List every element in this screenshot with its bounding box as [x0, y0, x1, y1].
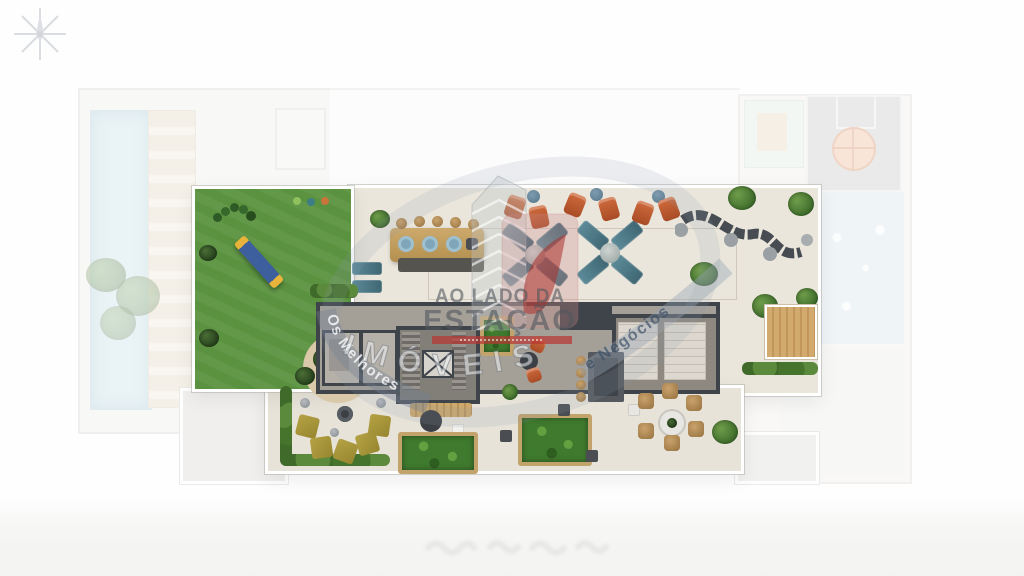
faint-caption-smudge	[420, 534, 630, 558]
watermark-tagline-line2: ESTAÇÃO	[420, 305, 580, 338]
watermark-red-band	[432, 336, 572, 344]
floorplan-canvas: Os Melhores e Negócios IMÓVEIS AO LADO D…	[0, 0, 1024, 576]
